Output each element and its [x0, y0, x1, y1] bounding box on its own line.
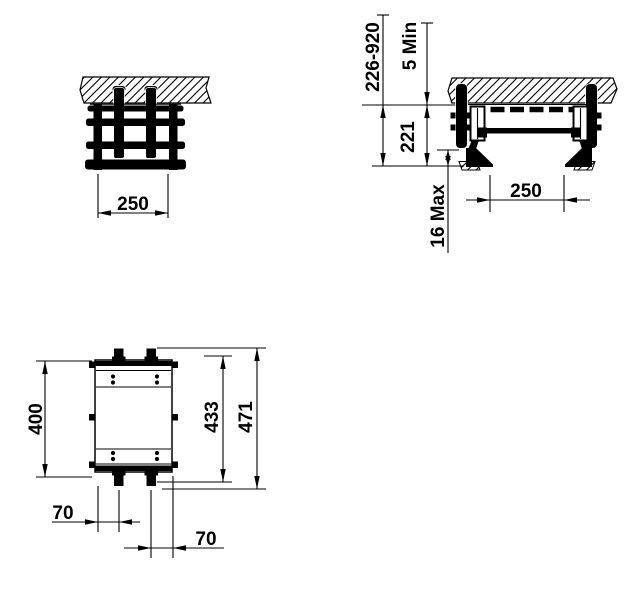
right-foot-anchor-hatch [574, 162, 595, 171]
dim-label-peg-offset-rear: 70 [195, 529, 216, 550]
dim-label-peg-offset-front: 70 [52, 503, 73, 524]
technical-drawing-page: 250 [0, 0, 630, 604]
left-foot-anchor-hatch [459, 162, 480, 171]
dim-label-frame-length: 400 [26, 403, 47, 435]
dim-label-front-width: 250 [117, 194, 149, 215]
dimension-drawing-canvas: 250 [0, 0, 630, 604]
dim-label-top-clearance: 5 Min [400, 22, 421, 71]
dim-label-floor-clearance: 16 Max [428, 184, 449, 248]
dim-label-plate-length: 433 [202, 401, 223, 433]
seat-plate-plan [89, 349, 178, 487]
dim-label-side-depth: 250 [510, 181, 542, 202]
dim-label-mount-height-range: 226-920 [363, 22, 384, 92]
dim-label-frame-height: 221 [398, 121, 419, 153]
lower-cross-rail [483, 128, 575, 134]
dim-label-overall-length: 471 [236, 401, 257, 433]
